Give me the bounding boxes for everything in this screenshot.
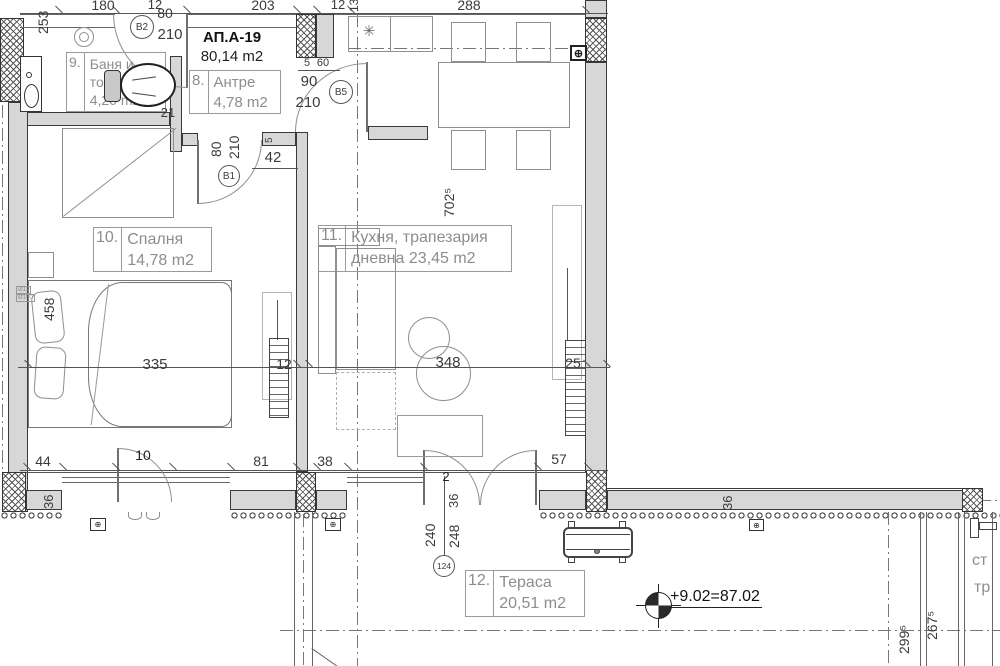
terrace-door-right-swing xyxy=(480,450,536,505)
dim-288: 288 xyxy=(450,0,488,12)
jamb-mark xyxy=(970,518,979,538)
dim-81: 81 xyxy=(248,454,274,468)
room-area: 20,51 m2 xyxy=(499,594,566,615)
dim-335: 335 xyxy=(138,357,172,372)
dining-chair xyxy=(516,130,551,170)
dim-44: 44 xyxy=(30,454,56,468)
dim-203: 203 xyxy=(245,0,281,12)
terrace-rail xyxy=(958,512,959,666)
room-number: 12. xyxy=(466,571,494,616)
room-label-hall: 8. Антре 4,78 m2 xyxy=(189,70,281,114)
dim-80: 80 xyxy=(154,6,176,20)
junction-box-icon: ⊕ xyxy=(90,518,106,531)
dim-348: 348 xyxy=(430,355,466,370)
dim-702: 702⁵ xyxy=(442,180,458,224)
window-tag-124: 124 xyxy=(433,555,455,577)
cooktop-icon: ✳ xyxy=(358,20,380,42)
terrace-rail xyxy=(920,512,921,666)
partial-text-2: тр xyxy=(974,580,990,596)
dim-458: 458 xyxy=(42,290,58,328)
terrace-rail xyxy=(294,512,295,666)
sofa-seat xyxy=(336,248,396,370)
dim-line-bottom xyxy=(20,470,608,471)
wall-line-top xyxy=(188,27,296,28)
wall-stub-b5 xyxy=(368,126,428,140)
dim-36a: 36 xyxy=(42,489,56,515)
wall-bottom xyxy=(316,490,347,510)
pipe-label-1: Ø12 xyxy=(16,286,31,294)
room-number: 10. xyxy=(94,228,122,271)
axis-line-terrace xyxy=(280,630,1000,631)
door-tag-b2: В2 xyxy=(130,15,154,39)
terrace-rail xyxy=(992,512,993,666)
dim-132: 132 xyxy=(348,0,361,16)
elevation-underline xyxy=(670,607,762,608)
ac-unit-dot xyxy=(594,549,600,554)
elevation-marker-icon xyxy=(645,592,672,619)
wall-left-exterior xyxy=(8,102,28,512)
sofa-armrest xyxy=(318,228,380,246)
dim-line-5-60 xyxy=(298,70,340,71)
dim-180: 180 xyxy=(86,0,120,12)
wall-bottom xyxy=(230,490,296,510)
junction-box-icon: ⊕ xyxy=(749,519,764,531)
wall-column-hatch xyxy=(296,472,316,512)
dim-line-42 xyxy=(252,168,298,169)
window-kitchen xyxy=(347,482,423,483)
wall-line-top xyxy=(334,14,585,15)
wall-right-exterior xyxy=(585,62,607,472)
kitchen-counter-divider xyxy=(390,16,391,52)
tv-cabinet xyxy=(397,415,483,457)
room-label-bedroom: 10. Спалня 14,78 m2 xyxy=(93,227,212,272)
axis-line xyxy=(303,514,304,666)
ac-unit-line xyxy=(566,534,630,535)
radiator-pipe xyxy=(277,300,278,340)
sofa-back xyxy=(318,246,336,374)
dim-line-124 xyxy=(444,476,445,556)
wall-right-exterior xyxy=(585,0,607,18)
dim-b2-210: 210 xyxy=(154,27,186,42)
room-label-terrace: 12. Тераса 20,51 m2 xyxy=(465,570,585,617)
jamb-mark xyxy=(979,522,997,530)
insulation-row xyxy=(539,511,1000,520)
room-number: 9. xyxy=(67,53,85,111)
nightstand xyxy=(28,252,54,278)
dim-10: 10 xyxy=(131,448,155,462)
dim-line-mid xyxy=(18,367,610,368)
dim-12-wall: 12 xyxy=(274,357,294,371)
dim-25: 25 xyxy=(560,356,586,370)
floor-drain-inner xyxy=(79,32,89,42)
elevation-text: +9.02=87.02 xyxy=(670,589,760,605)
partial-text-1: ст xyxy=(972,553,987,569)
faucet-dot xyxy=(26,72,32,78)
wall-column-hatch xyxy=(585,18,607,62)
toilet-bowl xyxy=(120,63,176,107)
wall-column-hatch xyxy=(962,488,983,512)
wall-bottom-right xyxy=(607,490,963,510)
wall-bedroom-kitchen xyxy=(296,132,308,472)
room-area: 23,45 m2 xyxy=(409,250,476,267)
dim-b1-80: 80 xyxy=(209,133,223,165)
toilet-tank xyxy=(104,70,121,102)
window-kitchen xyxy=(347,477,423,478)
dining-chair xyxy=(516,22,551,62)
dining-table xyxy=(438,62,570,128)
dim-21: 21 xyxy=(158,106,178,119)
pipe-label-2: Ø160 xyxy=(16,294,35,302)
sill-mark xyxy=(146,512,160,520)
bed-blanket xyxy=(88,282,232,427)
terrace-rail xyxy=(312,512,313,666)
wall-column-hatch xyxy=(2,472,26,512)
door-tag-b5: В5 xyxy=(329,80,353,104)
terrace-diagonal xyxy=(311,648,338,666)
dim-90: 90 xyxy=(295,74,323,89)
terrace-rail xyxy=(964,512,965,666)
washbasin xyxy=(24,84,39,108)
apartment-id: АП.А-19 xyxy=(194,30,270,45)
dining-chair xyxy=(451,130,486,170)
sofa-ottoman xyxy=(336,372,396,430)
dim-60: 60 xyxy=(314,58,332,69)
wall-bottom xyxy=(539,490,586,510)
dim-b1-210: 210 xyxy=(227,128,241,166)
dim-2: 2 xyxy=(440,470,452,483)
axis-line xyxy=(888,512,889,666)
room-name: Спалня xyxy=(127,230,194,251)
dim-b5-210: 210 xyxy=(291,95,325,110)
dim-299: 299⁵ xyxy=(897,616,914,662)
wall-bath-bottom xyxy=(27,112,170,126)
dining-chair xyxy=(451,22,486,62)
room-area: 14,78 m2 xyxy=(127,251,194,272)
wall-line-top xyxy=(188,14,296,15)
dim-57: 57 xyxy=(546,452,572,466)
electric-panel-icon: ⊕ xyxy=(570,45,587,61)
wall-stub xyxy=(182,133,198,146)
wall-column-hatch xyxy=(296,14,316,58)
room-name: Тераса xyxy=(499,573,566,594)
dim-267: 267⁵ xyxy=(925,602,942,648)
dim-5b: 5 xyxy=(265,133,275,147)
dim-36b: 36 xyxy=(447,487,461,515)
dim-240: 240 xyxy=(423,515,437,555)
wall-edge xyxy=(607,488,963,489)
junction-box-icon: ⊕ xyxy=(325,518,341,531)
wall-hall-right xyxy=(316,14,334,58)
apartment-area: 80,14 m2 xyxy=(192,49,272,64)
dim-42: 42 xyxy=(258,150,288,165)
floor-plan: 9. Баня и тоалетна 4,20 m2 8. Антре 4,78… xyxy=(0,0,1000,666)
dim-12b: 12 xyxy=(328,0,348,11)
dim-5: 5 xyxy=(302,58,312,69)
bed-pillow xyxy=(33,346,67,400)
axis-line xyxy=(2,36,3,512)
room-area: 4,78 m2 xyxy=(214,93,268,113)
radiator-pipe xyxy=(567,268,568,340)
dim-line-top xyxy=(20,13,608,14)
wall-column-hatch xyxy=(586,470,607,512)
sill-mark xyxy=(128,512,142,520)
dim-38: 38 xyxy=(313,454,337,468)
dim-253: 253 xyxy=(36,0,52,46)
dim-248: 248 xyxy=(447,515,461,557)
room-name: Антре xyxy=(214,73,268,93)
dim-36c: 36 xyxy=(721,489,735,517)
door-tag-b1: В1 xyxy=(218,165,240,187)
radiator-bedroom xyxy=(269,338,289,418)
room-number: 8. xyxy=(190,71,209,113)
